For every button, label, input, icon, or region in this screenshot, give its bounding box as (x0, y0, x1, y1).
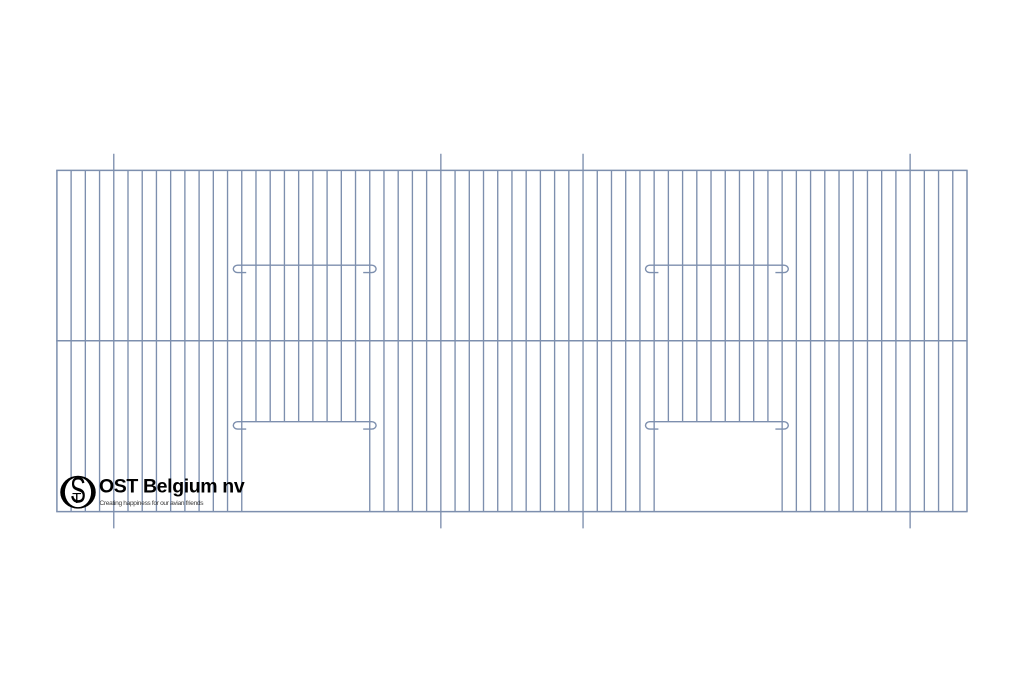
svg-text:T: T (72, 490, 81, 507)
svg-text:OST Belgium nv: OST Belgium nv (99, 476, 245, 498)
svg-text:Creating happiness for our avi: Creating happiness for our avian friends (100, 500, 205, 507)
